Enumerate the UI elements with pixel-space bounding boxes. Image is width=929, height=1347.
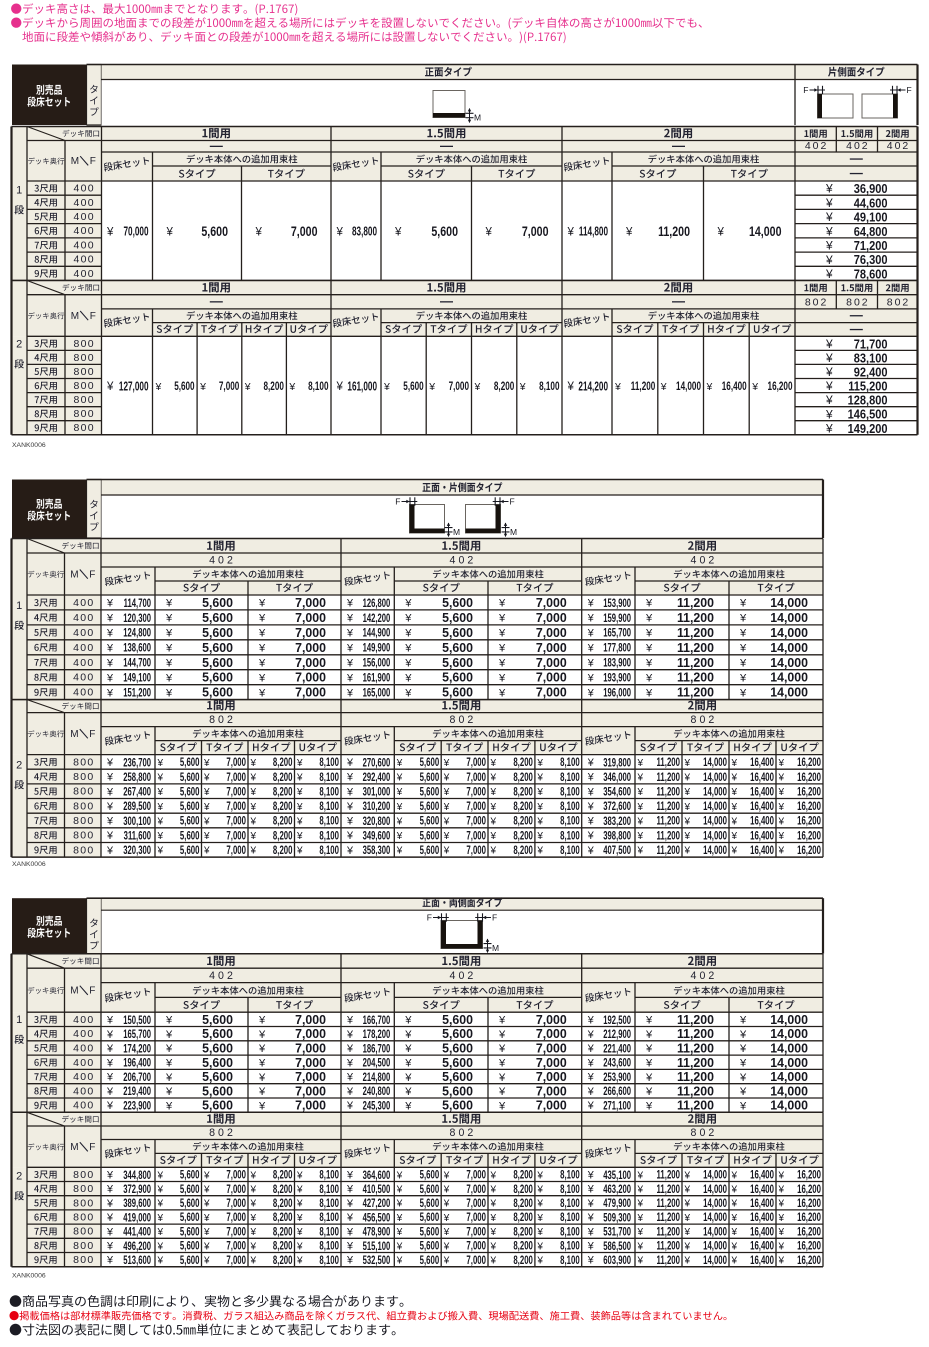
svg-text:¥: ¥ <box>485 226 493 238</box>
svg-text:M: M <box>510 527 517 537</box>
svg-text:¥: ¥ <box>587 1241 595 1253</box>
svg-text:F: F <box>492 913 497 923</box>
svg-text:¥: ¥ <box>536 758 543 769</box>
svg-text:8,200: 8,200 <box>513 1212 533 1225</box>
svg-text:800: 800 <box>73 394 94 406</box>
svg-text:300,100: 300,100 <box>123 815 151 828</box>
svg-text:5,600: 5,600 <box>420 830 440 843</box>
svg-text:7,000: 7,000 <box>226 786 246 799</box>
svg-text:463,200: 463,200 <box>603 1183 631 1196</box>
svg-text:¥: ¥ <box>660 381 667 393</box>
svg-text:83,800: 83,800 <box>352 225 377 239</box>
svg-text:¥: ¥ <box>106 226 114 238</box>
svg-text:16,200: 16,200 <box>797 1212 821 1225</box>
svg-text:¥: ¥ <box>587 613 595 625</box>
svg-text:64,800: 64,800 <box>854 224 888 239</box>
svg-text:¥: ¥ <box>157 846 164 857</box>
svg-text:156,000: 156,000 <box>363 657 391 670</box>
svg-text:¥: ¥ <box>498 687 506 699</box>
svg-text:11,200: 11,200 <box>677 641 714 655</box>
svg-text:¥: ¥ <box>404 1086 412 1098</box>
svg-text:¥: ¥ <box>250 1213 257 1224</box>
svg-text:289,500: 289,500 <box>123 801 151 814</box>
svg-text:¥: ¥ <box>637 1185 644 1196</box>
svg-text:¥: ¥ <box>106 642 114 654</box>
svg-text:¥: ¥ <box>346 1043 354 1055</box>
svg-text:¥: ¥ <box>739 1015 747 1027</box>
svg-text:7,000: 7,000 <box>295 1056 326 1070</box>
svg-text:8,100: 8,100 <box>319 1183 339 1196</box>
svg-text:14,000: 14,000 <box>770 1084 808 1098</box>
svg-text:8,200: 8,200 <box>273 1169 293 1182</box>
svg-text:¥: ¥ <box>731 787 738 798</box>
svg-text:16,200: 16,200 <box>797 1183 821 1196</box>
svg-text:¥: ¥ <box>203 846 210 857</box>
svg-text:5,600: 5,600 <box>442 611 473 625</box>
svg-text:400: 400 <box>73 657 94 669</box>
svg-text:¥: ¥ <box>250 831 257 842</box>
svg-text:¥: ¥ <box>106 1100 114 1112</box>
svg-text:11,200: 11,200 <box>677 685 714 699</box>
svg-text:¥: ¥ <box>106 845 114 857</box>
svg-text:11,200: 11,200 <box>677 626 714 640</box>
svg-text:¥: ¥ <box>684 1227 691 1238</box>
svg-text:8,200: 8,200 <box>273 1254 293 1267</box>
svg-text:151,200: 151,200 <box>123 687 151 700</box>
svg-text:5,600: 5,600 <box>420 1212 440 1225</box>
svg-text:¥: ¥ <box>396 772 403 783</box>
svg-text:267,400: 267,400 <box>123 786 151 799</box>
svg-text:8,200: 8,200 <box>513 1183 533 1196</box>
svg-text:¥: ¥ <box>165 658 173 670</box>
svg-text:¥: ¥ <box>165 1086 173 1098</box>
svg-text:126,800: 126,800 <box>363 597 391 610</box>
svg-text:¥: ¥ <box>165 1072 173 1084</box>
svg-text:5,600: 5,600 <box>174 381 195 394</box>
svg-text:¥: ¥ <box>157 1185 164 1196</box>
svg-text:7,000: 7,000 <box>226 830 246 843</box>
svg-text:¥: ¥ <box>684 1213 691 1224</box>
svg-text:496,200: 496,200 <box>123 1240 151 1253</box>
svg-text:8,100: 8,100 <box>560 845 580 858</box>
svg-text:¥: ¥ <box>778 816 785 827</box>
svg-text:¥: ¥ <box>825 224 833 238</box>
svg-text:¥: ¥ <box>296 846 303 857</box>
svg-text:¥: ¥ <box>106 598 114 610</box>
svg-text:F: F <box>90 311 96 322</box>
svg-text:XANK0006: XANK0006 <box>12 1273 46 1280</box>
svg-text:183,900: 183,900 <box>603 657 631 670</box>
svg-text:¥: ¥ <box>157 1227 164 1238</box>
svg-text:¥: ¥ <box>637 1241 644 1252</box>
svg-text:1: 1 <box>16 600 22 612</box>
svg-text:92,400: 92,400 <box>854 365 888 380</box>
svg-text:¥: ¥ <box>258 613 266 625</box>
svg-text:¥: ¥ <box>587 830 595 842</box>
svg-text:14,000: 14,000 <box>703 1240 727 1253</box>
svg-text:5,600: 5,600 <box>180 801 200 814</box>
svg-text:7,000: 7,000 <box>536 1027 567 1041</box>
svg-text:¥: ¥ <box>396 1170 403 1181</box>
svg-text:¥: ¥ <box>296 1213 303 1224</box>
svg-text:¥: ¥ <box>255 226 263 238</box>
svg-text:M: M <box>492 943 499 953</box>
svg-text:16,200: 16,200 <box>797 1169 821 1182</box>
svg-text:¥: ¥ <box>825 253 833 267</box>
svg-text:M: M <box>474 113 481 123</box>
svg-text:8,200: 8,200 <box>513 1240 533 1253</box>
svg-text:5,600: 5,600 <box>180 771 200 784</box>
svg-text:¥: ¥ <box>739 687 747 699</box>
svg-text:800: 800 <box>73 352 94 364</box>
svg-text:¥: ¥ <box>637 816 644 827</box>
svg-text:7,000: 7,000 <box>466 1198 486 1211</box>
svg-text:¥: ¥ <box>587 845 595 857</box>
svg-text:¥: ¥ <box>258 1029 266 1041</box>
svg-text:¥: ¥ <box>498 1015 506 1027</box>
svg-text:16,400: 16,400 <box>750 1254 774 1267</box>
svg-text:7,000: 7,000 <box>536 611 567 625</box>
svg-text:¥: ¥ <box>587 1015 595 1027</box>
svg-text:435,100: 435,100 <box>603 1169 631 1182</box>
svg-text:7,000: 7,000 <box>226 1183 246 1196</box>
svg-text:5,600: 5,600 <box>420 1254 440 1267</box>
svg-text:¥: ¥ <box>490 816 497 827</box>
svg-text:7,000: 7,000 <box>466 757 486 770</box>
svg-text:¥: ¥ <box>106 1170 114 1182</box>
svg-text:177,800: 177,800 <box>603 642 631 655</box>
svg-text:¥: ¥ <box>739 643 747 655</box>
svg-text:¥: ¥ <box>645 1015 653 1027</box>
svg-text:11,200: 11,200 <box>677 1013 714 1027</box>
svg-text:346,000: 346,000 <box>603 771 631 784</box>
svg-text:¥: ¥ <box>346 757 354 769</box>
svg-text:¥: ¥ <box>203 1241 210 1252</box>
svg-text:¥: ¥ <box>157 802 164 813</box>
svg-text:¥: ¥ <box>825 337 833 351</box>
svg-text:7,000: 7,000 <box>466 830 486 843</box>
svg-text:8,200: 8,200 <box>513 1198 533 1211</box>
svg-text:¥: ¥ <box>106 1086 114 1098</box>
svg-text:11,200: 11,200 <box>657 1198 681 1211</box>
svg-text:7,000: 7,000 <box>295 1070 326 1084</box>
svg-text:11,200: 11,200 <box>677 1098 714 1112</box>
svg-text:¥: ¥ <box>346 830 354 842</box>
svg-text:5,600: 5,600 <box>202 596 233 610</box>
svg-text:¥: ¥ <box>684 831 691 842</box>
svg-text:16,200: 16,200 <box>797 830 821 843</box>
svg-text:16,200: 16,200 <box>797 1254 821 1267</box>
svg-text:¥: ¥ <box>645 643 653 655</box>
svg-text:802: 802 <box>846 297 870 309</box>
svg-text:¥: ¥ <box>346 1029 354 1041</box>
svg-text:16,200: 16,200 <box>768 381 793 394</box>
svg-text:¥: ¥ <box>731 772 738 783</box>
svg-text:7,000: 7,000 <box>536 1041 567 1055</box>
svg-text:11,200: 11,200 <box>677 596 714 610</box>
svg-text:114,800: 114,800 <box>579 225 608 239</box>
svg-text:¥: ¥ <box>587 1086 595 1098</box>
svg-text:11,200: 11,200 <box>657 815 681 828</box>
svg-text:11,200: 11,200 <box>657 1169 681 1182</box>
svg-text:800: 800 <box>73 786 94 798</box>
svg-text:¥: ¥ <box>498 1029 506 1041</box>
svg-text:¥: ¥ <box>637 846 644 857</box>
svg-text:¥: ¥ <box>396 1256 403 1267</box>
svg-text:¥: ¥ <box>490 831 497 842</box>
svg-text:¥: ¥ <box>778 1241 785 1252</box>
svg-text:¥: ¥ <box>625 226 633 238</box>
svg-text:¥: ¥ <box>250 1256 257 1267</box>
svg-text:800: 800 <box>73 1212 94 1224</box>
svg-text:¥: ¥ <box>684 802 691 813</box>
svg-text:7,000: 7,000 <box>295 1084 326 1098</box>
svg-text:¥: ¥ <box>157 831 164 842</box>
svg-text:¥: ¥ <box>443 1241 450 1252</box>
svg-text:8,100: 8,100 <box>319 1226 339 1239</box>
svg-text:120,300: 120,300 <box>123 612 151 625</box>
svg-text:14,000: 14,000 <box>703 1254 727 1267</box>
svg-text:5,600: 5,600 <box>180 830 200 843</box>
svg-text:¥: ¥ <box>157 1241 164 1252</box>
svg-text:¥: ¥ <box>199 381 206 393</box>
svg-text:407,500: 407,500 <box>603 845 631 858</box>
svg-text:800: 800 <box>73 756 94 768</box>
svg-text:¥: ¥ <box>346 687 354 699</box>
svg-text:8,200: 8,200 <box>513 1254 533 1267</box>
svg-text:¥: ¥ <box>825 196 833 210</box>
svg-text:¥: ¥ <box>165 1029 173 1041</box>
svg-text:11,200: 11,200 <box>677 1041 714 1055</box>
svg-text:¥: ¥ <box>739 1029 747 1041</box>
svg-text:F: F <box>89 986 95 997</box>
svg-text:¥: ¥ <box>203 1213 210 1224</box>
svg-text:7,000: 7,000 <box>536 670 567 684</box>
svg-text:16,400: 16,400 <box>750 1226 774 1239</box>
svg-text:¥: ¥ <box>684 1256 691 1267</box>
svg-text:¥: ¥ <box>258 1072 266 1084</box>
svg-text:14,000: 14,000 <box>703 815 727 828</box>
svg-text:¥: ¥ <box>157 1256 164 1267</box>
svg-text:7,000: 7,000 <box>226 771 246 784</box>
svg-text:¥: ¥ <box>165 672 173 684</box>
svg-text:¥: ¥ <box>739 658 747 670</box>
svg-text:¥: ¥ <box>258 672 266 684</box>
svg-text:802: 802 <box>450 714 477 726</box>
svg-text:7,000: 7,000 <box>536 1070 567 1084</box>
svg-text:204,500: 204,500 <box>363 1057 391 1070</box>
svg-text:8,100: 8,100 <box>319 1169 339 1182</box>
svg-text:402: 402 <box>209 555 236 567</box>
svg-text:7,000: 7,000 <box>522 223 549 239</box>
svg-text:7,000: 7,000 <box>466 771 486 784</box>
svg-text:8,200: 8,200 <box>273 845 293 858</box>
svg-text:14,000: 14,000 <box>703 1212 727 1225</box>
svg-text:8,200: 8,200 <box>513 1169 533 1182</box>
svg-text:F: F <box>510 497 515 507</box>
svg-text:F: F <box>90 156 96 167</box>
svg-text:¥: ¥ <box>778 831 785 842</box>
svg-text:5,600: 5,600 <box>420 786 440 799</box>
svg-text:¥: ¥ <box>106 1029 114 1041</box>
svg-text:¥: ¥ <box>587 687 595 699</box>
svg-text:¥: ¥ <box>443 772 450 783</box>
svg-text:258,800: 258,800 <box>123 771 151 784</box>
svg-text:¥: ¥ <box>346 772 354 784</box>
svg-text:5,600: 5,600 <box>180 815 200 828</box>
svg-text:¥: ¥ <box>587 642 595 654</box>
svg-text:¥: ¥ <box>396 846 403 857</box>
svg-text:802: 802 <box>209 714 236 726</box>
svg-text:11,200: 11,200 <box>658 223 690 239</box>
svg-text:¥: ¥ <box>684 1170 691 1181</box>
svg-text:¥: ¥ <box>825 267 833 281</box>
svg-text:¥: ¥ <box>428 381 435 393</box>
svg-text:14,000: 14,000 <box>703 757 727 770</box>
svg-text:¥: ¥ <box>536 1185 543 1196</box>
svg-text:14,000: 14,000 <box>770 685 808 699</box>
svg-text:¥: ¥ <box>490 1256 497 1267</box>
svg-text:44,600: 44,600 <box>854 195 888 210</box>
svg-text:¥: ¥ <box>250 772 257 783</box>
svg-text:400: 400 <box>73 1028 94 1040</box>
svg-text:14,000: 14,000 <box>770 1056 808 1070</box>
svg-text:5,600: 5,600 <box>420 771 440 784</box>
svg-text:¥: ¥ <box>717 226 725 238</box>
svg-text:¥: ¥ <box>346 816 354 828</box>
svg-text:¥: ¥ <box>536 1170 543 1181</box>
svg-text:¥: ¥ <box>346 1255 354 1267</box>
svg-text:11,200: 11,200 <box>657 771 681 784</box>
svg-text:70,000: 70,000 <box>123 225 148 239</box>
svg-text:8,100: 8,100 <box>319 757 339 770</box>
svg-text:¥: ¥ <box>536 1227 543 1238</box>
svg-text:¥: ¥ <box>731 1170 738 1181</box>
svg-text:¥: ¥ <box>731 1256 738 1267</box>
svg-text:16,400: 16,400 <box>750 815 774 828</box>
svg-text:8,100: 8,100 <box>560 786 580 799</box>
svg-text:¥: ¥ <box>396 787 403 798</box>
svg-text:¥: ¥ <box>637 1199 644 1210</box>
svg-text:14,000: 14,000 <box>770 1041 808 1055</box>
svg-text:5,600: 5,600 <box>442 1013 473 1027</box>
svg-text:186,700: 186,700 <box>363 1043 391 1056</box>
svg-text:¥: ¥ <box>645 1100 653 1112</box>
svg-text:F: F <box>907 85 912 95</box>
svg-text:¥: ¥ <box>778 1185 785 1196</box>
svg-text:¥: ¥ <box>106 381 114 393</box>
svg-text:5,600: 5,600 <box>202 1013 233 1027</box>
svg-text:¥: ¥ <box>203 758 210 769</box>
svg-text:178,200: 178,200 <box>363 1029 391 1042</box>
svg-text:M: M <box>71 311 79 322</box>
svg-text:¥: ¥ <box>250 787 257 798</box>
svg-text:7,000: 7,000 <box>226 1169 246 1182</box>
svg-text:400: 400 <box>73 225 94 237</box>
svg-text:¥: ¥ <box>637 787 644 798</box>
svg-text:¥: ¥ <box>490 846 497 857</box>
svg-text:400: 400 <box>73 183 94 195</box>
svg-text:¥: ¥ <box>587 772 595 784</box>
svg-text:¥: ¥ <box>498 1043 506 1055</box>
svg-text:5,600: 5,600 <box>442 670 473 684</box>
svg-text:402: 402 <box>691 970 718 982</box>
svg-text:¥: ¥ <box>443 758 450 769</box>
svg-text:¥: ¥ <box>404 672 412 684</box>
svg-text:¥: ¥ <box>346 1212 354 1224</box>
svg-text:400: 400 <box>73 627 94 639</box>
svg-text:11,200: 11,200 <box>677 1084 714 1098</box>
svg-text:¥: ¥ <box>731 1199 738 1210</box>
svg-text:¥: ¥ <box>731 816 738 827</box>
svg-text:144,700: 144,700 <box>123 657 151 670</box>
svg-text:144,900: 144,900 <box>363 627 391 640</box>
svg-text:¥: ¥ <box>825 407 833 421</box>
svg-text:800: 800 <box>73 338 94 350</box>
svg-text:¥: ¥ <box>498 1086 506 1098</box>
svg-text:800: 800 <box>73 1169 94 1181</box>
svg-text:¥: ¥ <box>106 1072 114 1084</box>
svg-text:F: F <box>89 1142 95 1153</box>
svg-text:¥: ¥ <box>296 787 303 798</box>
svg-text:¥: ¥ <box>346 1226 354 1238</box>
svg-text:¥: ¥ <box>587 1255 595 1267</box>
svg-text:509,300: 509,300 <box>603 1212 631 1225</box>
svg-text:¥: ¥ <box>778 758 785 769</box>
svg-text:5,600: 5,600 <box>180 1226 200 1239</box>
svg-text:11,200: 11,200 <box>657 1254 681 1267</box>
svg-text:¥: ¥ <box>645 613 653 625</box>
svg-text:¥: ¥ <box>778 846 785 857</box>
svg-text:¥: ¥ <box>106 1184 114 1196</box>
svg-text:800: 800 <box>73 1254 94 1266</box>
svg-text:8,200: 8,200 <box>494 381 515 394</box>
svg-text:8,100: 8,100 <box>560 1212 580 1225</box>
svg-text:¥: ¥ <box>498 613 506 625</box>
svg-text:5,600: 5,600 <box>202 611 233 625</box>
svg-text:14,000: 14,000 <box>770 1013 808 1027</box>
svg-text:¥: ¥ <box>106 1241 114 1253</box>
svg-text:800: 800 <box>73 380 94 392</box>
svg-text:11,200: 11,200 <box>657 1212 681 1225</box>
svg-text:¥: ¥ <box>296 772 303 783</box>
svg-text:402: 402 <box>887 140 911 152</box>
svg-text:400: 400 <box>73 211 94 223</box>
svg-text:¥: ¥ <box>490 787 497 798</box>
svg-text:7,000: 7,000 <box>466 845 486 858</box>
svg-text:¥: ¥ <box>498 1100 506 1112</box>
svg-text:¥: ¥ <box>396 1199 403 1210</box>
svg-text:11,200: 11,200 <box>657 786 681 799</box>
svg-text:7,000: 7,000 <box>536 1098 567 1112</box>
svg-text:F: F <box>395 497 400 507</box>
svg-text:¥: ¥ <box>637 831 644 842</box>
svg-text:400: 400 <box>73 687 94 699</box>
svg-text:¥: ¥ <box>567 226 575 238</box>
svg-text:¥: ¥ <box>250 758 257 769</box>
svg-text:398,800: 398,800 <box>603 830 631 843</box>
svg-text:115,200: 115,200 <box>848 379 888 394</box>
svg-text:7,000: 7,000 <box>466 1226 486 1239</box>
svg-text:402: 402 <box>805 140 829 152</box>
svg-text:5,600: 5,600 <box>202 626 233 640</box>
svg-text:219,400: 219,400 <box>123 1086 151 1099</box>
svg-text:165,700: 165,700 <box>123 1029 151 1042</box>
svg-text:802: 802 <box>450 1127 477 1139</box>
svg-text:¥: ¥ <box>498 658 506 670</box>
svg-text:1: 1 <box>16 185 22 197</box>
svg-text:161,000: 161,000 <box>347 380 377 394</box>
